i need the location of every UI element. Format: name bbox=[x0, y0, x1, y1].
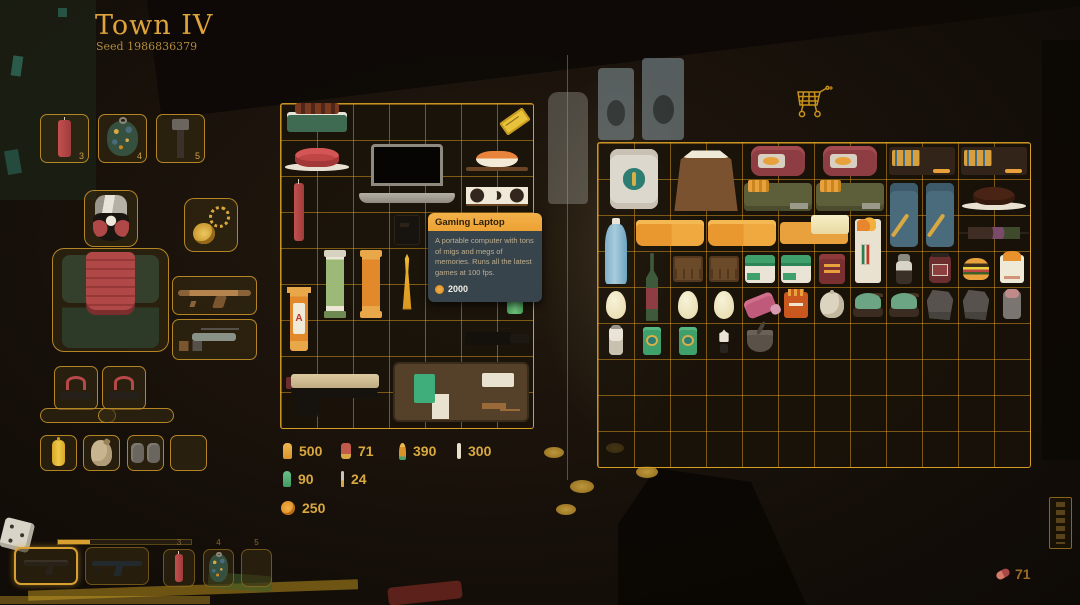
background-ceiling-beam bbox=[146, 0, 1080, 119]
seed-label: Seed 1986836379 bbox=[96, 40, 197, 53]
camo-grenade-icon bbox=[99, 115, 146, 162]
hotbar-number: 3 bbox=[177, 538, 181, 547]
quickslot-4[interactable]: 4 bbox=[98, 114, 147, 163]
coin-count: 250 bbox=[281, 500, 325, 516]
xp-bar bbox=[57, 539, 192, 545]
item-salt-shaker[interactable] bbox=[598, 323, 634, 359]
dynamite-icon bbox=[41, 115, 88, 162]
item-canned-meat-1[interactable] bbox=[742, 143, 814, 179]
item-camera[interactable] bbox=[461, 320, 533, 356]
metal-rod-icon bbox=[157, 115, 204, 162]
item-event-ticket[interactable] bbox=[497, 104, 533, 140]
item-cheese-block-1[interactable] bbox=[634, 215, 706, 251]
background-decor bbox=[11, 55, 24, 76]
item-salmon-nigiri[interactable] bbox=[461, 140, 533, 176]
background-milk-carton bbox=[642, 58, 684, 140]
rifle-round-icon bbox=[399, 443, 406, 460]
game-screen: Town IV Seed 1986836379 3 4 5 bbox=[0, 0, 1080, 605]
item-moss-clump-1[interactable] bbox=[850, 287, 886, 323]
item-pistol[interactable] bbox=[281, 356, 389, 428]
floor-coin bbox=[556, 504, 576, 515]
item-match-crate-1[interactable] bbox=[886, 143, 958, 179]
item-wine-bottle[interactable] bbox=[634, 251, 670, 323]
item-money-bundle[interactable] bbox=[598, 143, 670, 215]
background-decor bbox=[4, 149, 22, 175]
grey-bags-icon bbox=[128, 436, 163, 470]
item-snack-box[interactable] bbox=[778, 287, 814, 323]
background-arm-silhouette bbox=[618, 468, 808, 605]
ammo-count-rifle-round: 390 bbox=[399, 441, 457, 461]
mustard-bottle-icon bbox=[41, 436, 76, 470]
item-fried-chicken-bag[interactable] bbox=[994, 251, 1030, 287]
needle-icon bbox=[341, 471, 344, 487]
camo-grenade-icon bbox=[204, 550, 233, 586]
equipment-weapon-slot-2[interactable] bbox=[172, 319, 257, 360]
item-flour-sack[interactable] bbox=[670, 143, 742, 215]
equipment-weapon-slot-1[interactable] bbox=[172, 276, 257, 315]
background-milk-carton bbox=[598, 68, 634, 140]
item-garlic[interactable] bbox=[814, 287, 850, 323]
item-ammo-pouch-1[interactable] bbox=[886, 179, 922, 251]
dynamite-icon bbox=[164, 550, 194, 586]
ammo-count-pistol-round: 500 bbox=[283, 441, 341, 461]
background-wall-right bbox=[1042, 40, 1080, 460]
thin-round-icon bbox=[457, 443, 461, 459]
item-wooden-crate-1[interactable] bbox=[670, 251, 706, 287]
item-dynamite-stick[interactable] bbox=[281, 176, 317, 248]
gas-mask-icon bbox=[85, 191, 137, 246]
item-ammo-box-2[interactable] bbox=[814, 179, 886, 215]
pill-currency: 71 bbox=[996, 566, 1031, 582]
item-coin-roll-green[interactable] bbox=[317, 248, 353, 320]
hotbar-slot-5[interactable]: 5 bbox=[241, 549, 272, 587]
pill-icon bbox=[995, 567, 1011, 581]
floor-highlight bbox=[0, 596, 210, 604]
equipment-foot-slot-right[interactable] bbox=[102, 366, 146, 410]
floor-debris bbox=[387, 580, 462, 605]
sandal-icon bbox=[103, 367, 145, 409]
item-coin-roll-red[interactable] bbox=[281, 284, 317, 356]
vertical-banner-decor bbox=[1049, 497, 1072, 549]
tooltip-price: 2000 bbox=[435, 283, 535, 296]
item-egg-3[interactable] bbox=[706, 287, 742, 323]
item-wooden-crate-2[interactable] bbox=[706, 251, 742, 287]
item-kebab-skewer[interactable] bbox=[958, 215, 1030, 251]
item-gaming-laptop[interactable] bbox=[353, 140, 461, 212]
shop-grid[interactable] bbox=[597, 142, 1031, 468]
ammo-counts: 500713903009024 bbox=[283, 441, 525, 489]
xp-fill bbox=[58, 540, 90, 544]
item-first-aid-kit-2[interactable] bbox=[778, 251, 814, 287]
item-burning-letter[interactable] bbox=[850, 215, 886, 287]
item-chocolate-cake[interactable] bbox=[958, 179, 1030, 215]
background-jug bbox=[548, 92, 588, 204]
background-wall bbox=[0, 0, 96, 200]
smg-icon bbox=[86, 548, 148, 584]
quickslot-3[interactable]: 3 bbox=[40, 114, 89, 163]
item-pill-pack[interactable] bbox=[742, 287, 778, 323]
item-mortar-pestle[interactable] bbox=[742, 323, 778, 359]
item-egg-1[interactable] bbox=[598, 287, 634, 323]
item-canned-fish-2[interactable] bbox=[670, 323, 706, 359]
item-golden-trophy[interactable] bbox=[389, 248, 425, 320]
item-moss-clump-2[interactable] bbox=[886, 287, 922, 323]
item-tooltip: Gaming Laptop A portable computer with t… bbox=[428, 213, 542, 302]
gold-amulet-icon bbox=[185, 199, 237, 251]
sandal-icon bbox=[55, 367, 97, 409]
item-tobacco-pouch[interactable] bbox=[814, 251, 850, 287]
equipment-foot-slot-left[interactable] bbox=[54, 366, 98, 410]
cart-icon[interactable] bbox=[791, 84, 837, 120]
utility-slot-3[interactable] bbox=[127, 435, 164, 471]
equipment-necklace-slot[interactable] bbox=[184, 198, 238, 252]
item-grilled-skewers[interactable] bbox=[281, 104, 353, 140]
ammo-count-needle: 24 bbox=[341, 469, 399, 489]
hotbar-number: 4 bbox=[216, 538, 220, 547]
pill-count-value: 71 bbox=[1015, 566, 1031, 582]
coin-icon bbox=[281, 501, 295, 515]
item-grey-cloth-2[interactable] bbox=[958, 287, 994, 323]
hotbar-slot-4[interactable]: 4 bbox=[203, 549, 234, 587]
utility-slot-2[interactable] bbox=[83, 435, 120, 471]
item-ham-on-plate[interactable] bbox=[281, 140, 353, 176]
ammo-count-smg-green: 90 bbox=[283, 469, 341, 489]
leather-pouch-icon bbox=[84, 436, 119, 470]
samurai-armor-icon bbox=[53, 249, 168, 351]
smg-green-icon bbox=[283, 471, 291, 487]
utility-slot-4-empty[interactable] bbox=[170, 435, 207, 471]
tooltip-description: A portable computer with tons of migs an… bbox=[435, 236, 534, 277]
item-first-aid-kit-1[interactable] bbox=[742, 251, 778, 287]
equipment-torso-slot[interactable] bbox=[52, 248, 169, 352]
shotgun-shell-icon bbox=[341, 443, 351, 459]
item-coin-roll-orange[interactable] bbox=[353, 248, 389, 320]
tooltip-price-value: 2000 bbox=[448, 283, 468, 296]
background-decor bbox=[58, 8, 67, 17]
item-canned-meat-2[interactable] bbox=[814, 143, 886, 179]
item-egg-2[interactable] bbox=[670, 287, 706, 323]
item-dropper-bottle[interactable] bbox=[706, 323, 742, 359]
utility-slot-1[interactable] bbox=[40, 435, 77, 471]
item-ammo-box-1[interactable] bbox=[742, 179, 814, 215]
item-radio[interactable] bbox=[389, 212, 425, 248]
item-toolkit-briefcase[interactable] bbox=[389, 356, 533, 428]
hotbar-slot-2[interactable] bbox=[85, 547, 149, 585]
equipment-head-slot[interactable] bbox=[84, 190, 138, 247]
item-canned-fish-1[interactable] bbox=[634, 323, 670, 359]
pistol-round-icon bbox=[283, 443, 292, 459]
hotbar-slot-3[interactable]: 3 bbox=[163, 549, 195, 587]
item-burger[interactable] bbox=[958, 251, 994, 287]
tooltip-title: Gaming Laptop bbox=[428, 213, 542, 231]
hotbar-slot-1[interactable] bbox=[14, 547, 78, 585]
hotbar-number: 5 bbox=[254, 538, 258, 547]
wooden-smg-icon bbox=[173, 277, 256, 314]
item-cheese-block-2[interactable] bbox=[706, 215, 778, 251]
floor-coin bbox=[570, 480, 594, 493]
item-jam-jar[interactable] bbox=[922, 251, 958, 287]
page-title: Town IV bbox=[95, 10, 213, 41]
ammo-count-shotgun-shell: 71 bbox=[341, 441, 399, 461]
pistol-with-parts-icon bbox=[173, 320, 256, 359]
quickslot-5[interactable]: 5 bbox=[156, 114, 205, 163]
coin-icon bbox=[435, 285, 444, 294]
panel-divider bbox=[567, 55, 568, 480]
coin-count-value: 250 bbox=[302, 500, 325, 516]
item-grey-cloth-1[interactable] bbox=[922, 287, 958, 323]
item-bandage-roll[interactable] bbox=[994, 287, 1030, 323]
item-butter-stick[interactable] bbox=[778, 215, 850, 251]
ammo-count-thin-round: 300 bbox=[457, 441, 515, 461]
item-sushi-roll[interactable] bbox=[461, 176, 533, 212]
equipment-foot-base-right bbox=[98, 408, 174, 423]
item-match-crate-2[interactable] bbox=[958, 143, 1030, 179]
item-water-jug[interactable] bbox=[598, 215, 634, 287]
item-pepper-shaker[interactable] bbox=[886, 251, 922, 287]
floor-coin bbox=[544, 447, 564, 458]
item-ammo-pouch-2[interactable] bbox=[922, 179, 958, 251]
pistol-icon bbox=[16, 549, 76, 583]
